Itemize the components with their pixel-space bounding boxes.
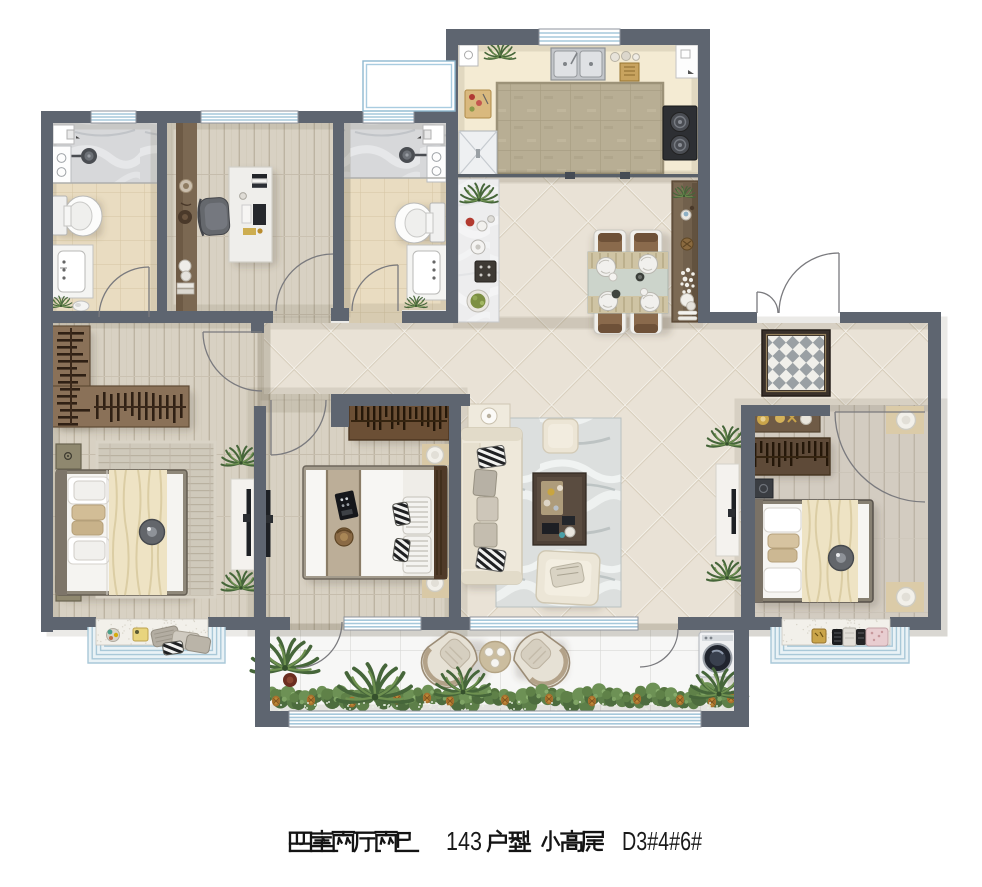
svg-text:143: 143: [446, 826, 482, 856]
svg-text:D3#4#6#: D3#4#6#: [622, 826, 702, 856]
